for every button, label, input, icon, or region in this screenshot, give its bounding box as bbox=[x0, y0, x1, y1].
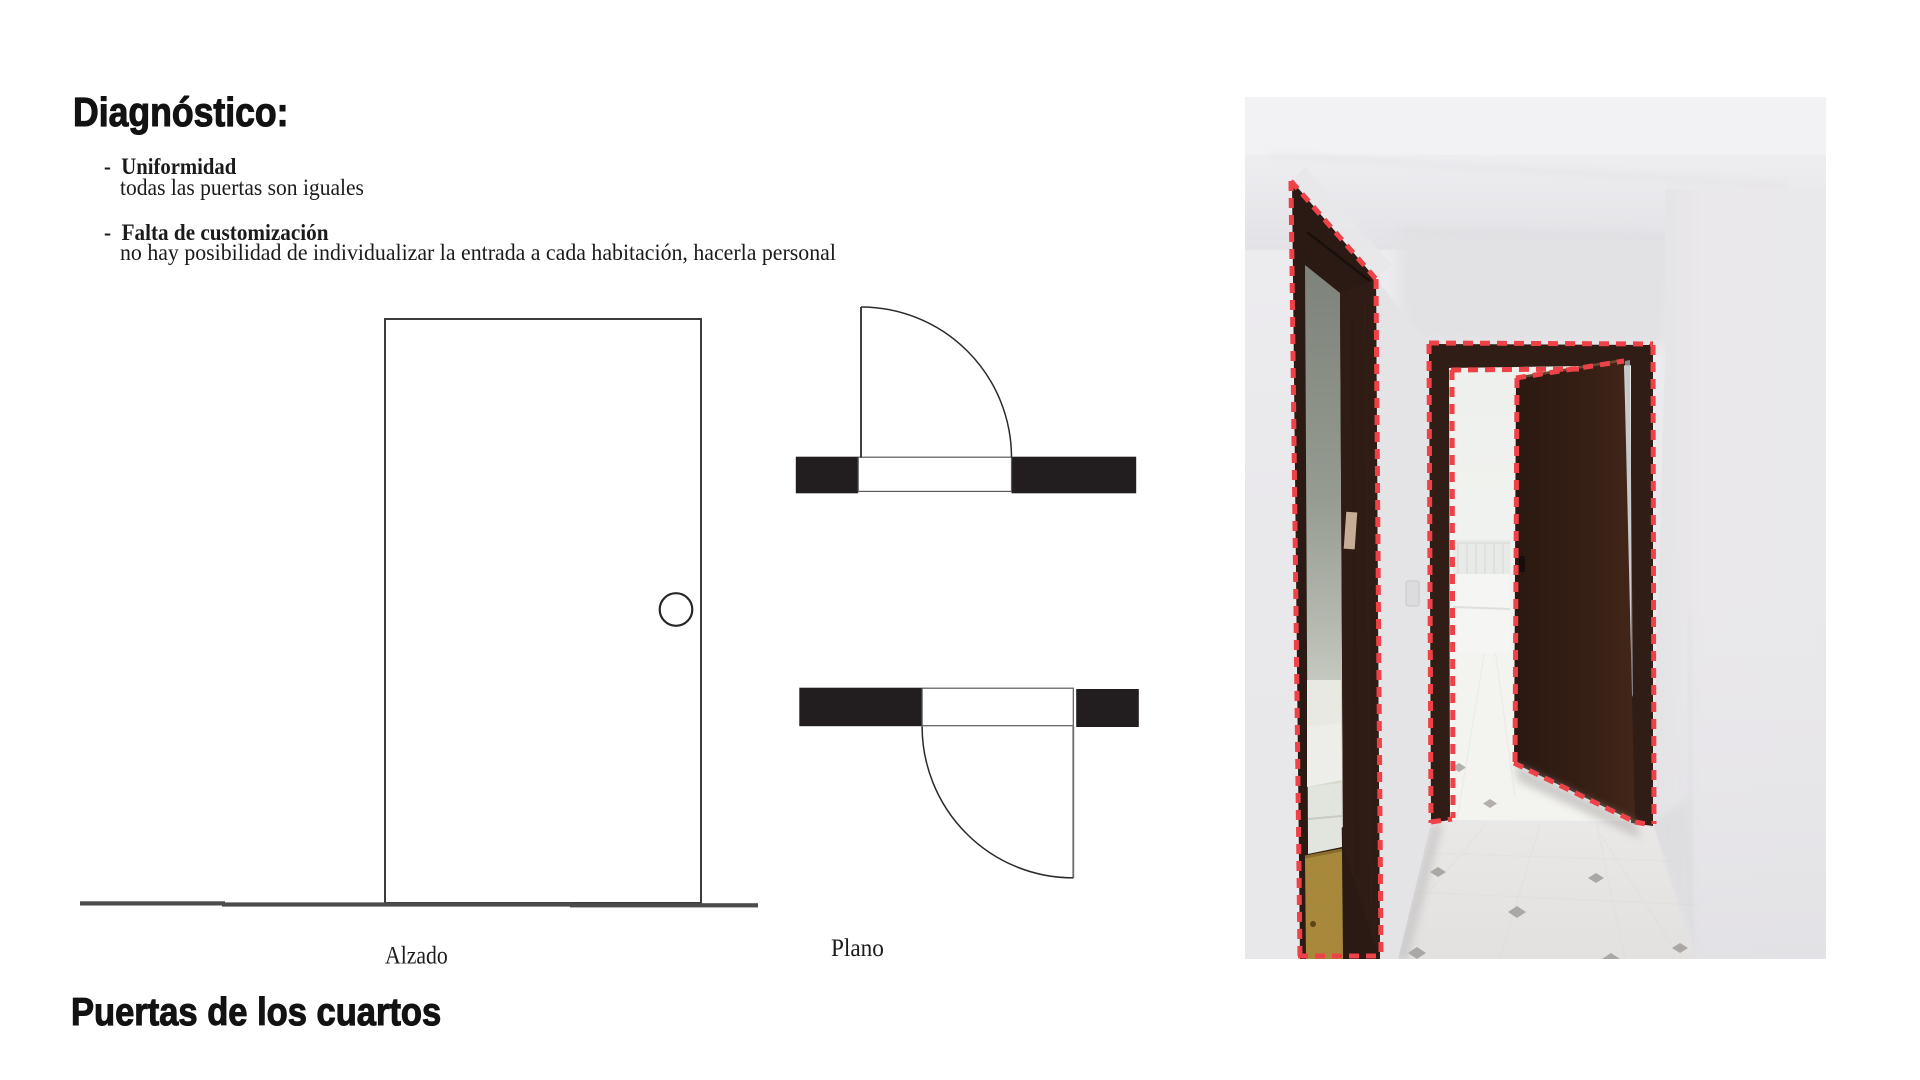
svg-text:Alzado: Alzado bbox=[385, 942, 448, 970]
svg-text:Plano: Plano bbox=[831, 934, 884, 962]
